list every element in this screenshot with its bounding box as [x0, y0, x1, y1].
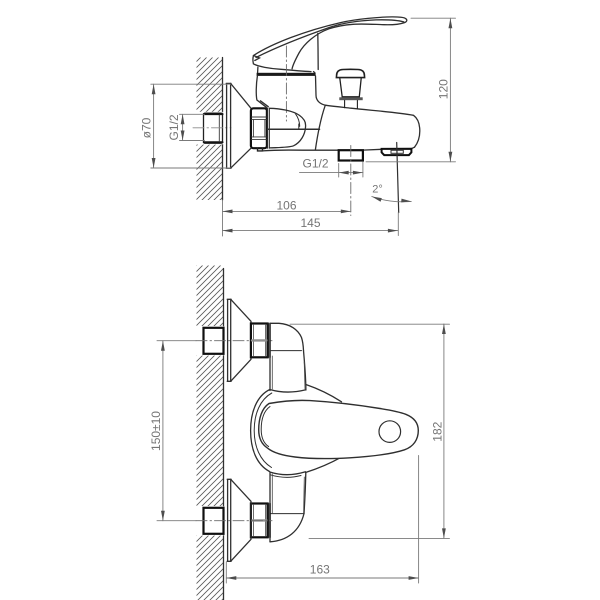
svg-text:ø70: ø70 [139, 117, 153, 138]
svg-text:G1/2: G1/2 [302, 157, 328, 171]
svg-text:182: 182 [430, 421, 444, 441]
svg-text:106: 106 [276, 198, 296, 212]
svg-text:150±10: 150±10 [149, 411, 163, 451]
svg-text:145: 145 [300, 216, 320, 230]
svg-text:163: 163 [310, 563, 330, 577]
svg-text:2°: 2° [372, 184, 383, 196]
svg-text:120: 120 [437, 79, 451, 99]
svg-text:G1/2: G1/2 [167, 114, 181, 140]
